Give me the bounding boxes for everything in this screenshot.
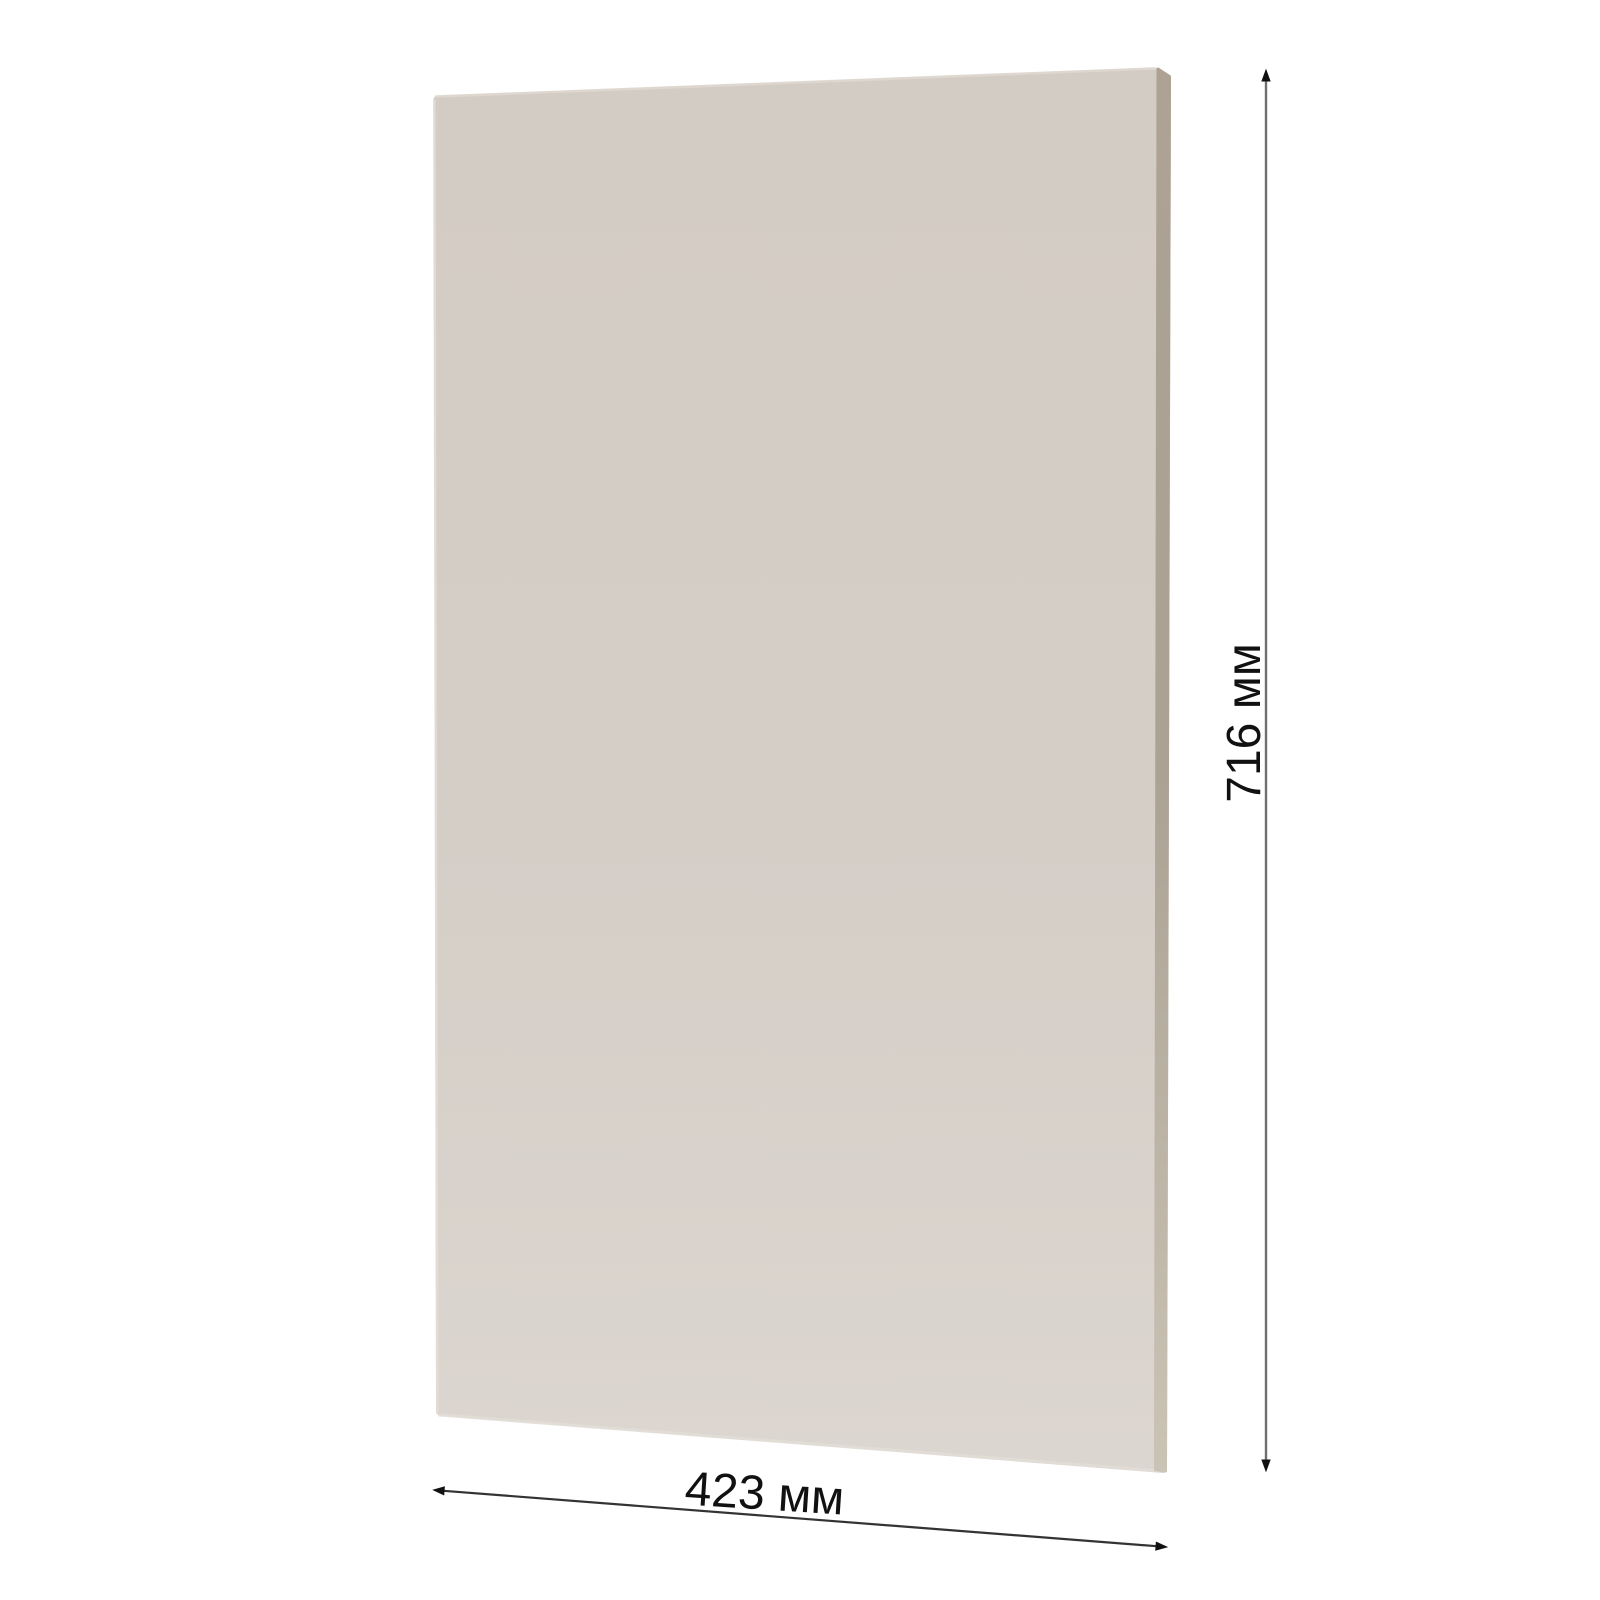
svg-text:716 мм: 716 мм xyxy=(1218,643,1271,802)
svg-text:423 мм: 423 мм xyxy=(683,1462,846,1525)
